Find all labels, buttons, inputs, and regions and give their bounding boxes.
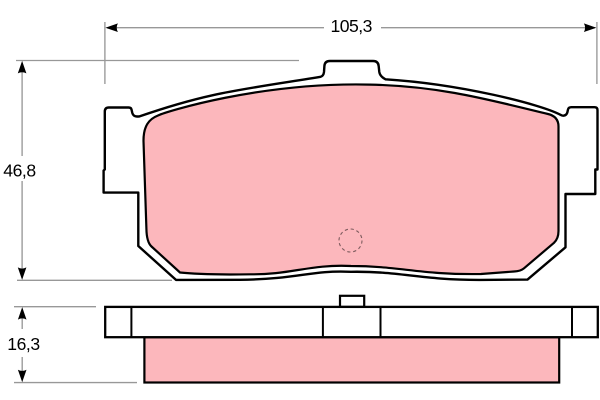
svg-text:46,8: 46,8	[3, 161, 36, 181]
svg-text:105,3: 105,3	[331, 16, 373, 36]
svg-text:16,3: 16,3	[7, 334, 40, 354]
